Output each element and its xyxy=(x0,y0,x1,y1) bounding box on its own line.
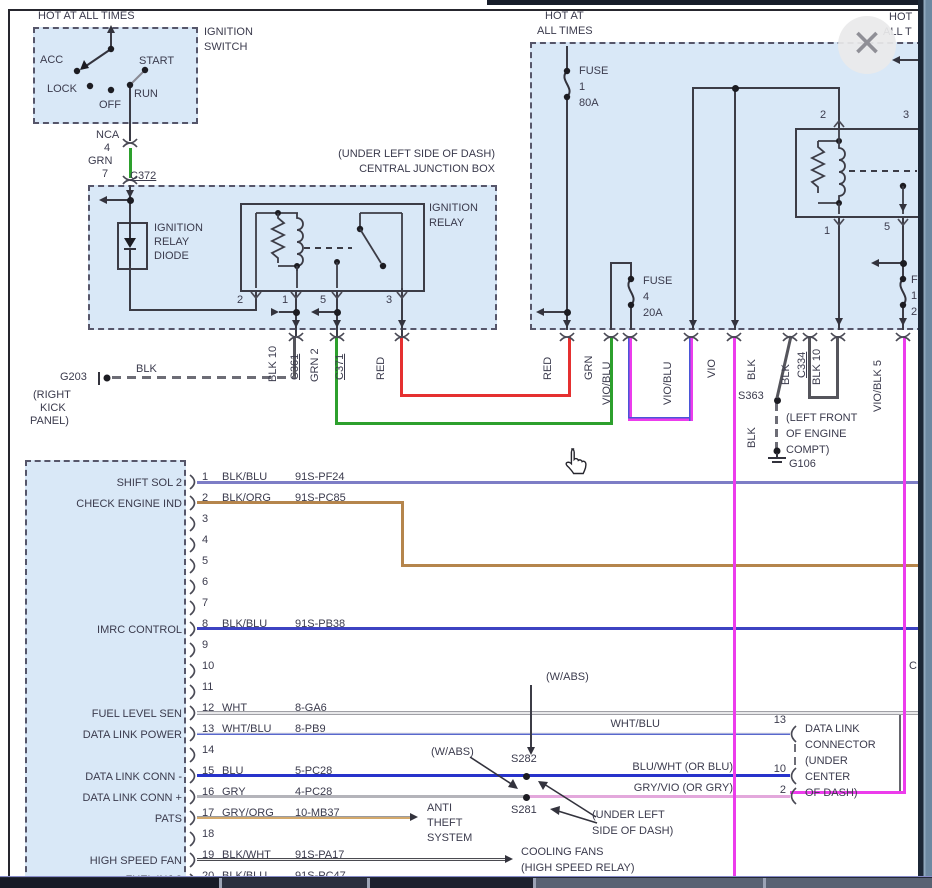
window-top-edge xyxy=(487,0,932,5)
cjb-pin-2: 2 xyxy=(237,294,243,307)
pos-start: START xyxy=(139,55,174,68)
pin-number: 19 xyxy=(202,849,222,862)
splice-location-note: (UNDER LEFT xyxy=(592,809,665,822)
pin-number: 3 xyxy=(202,513,222,526)
fuse1-label: FUSE xyxy=(579,65,608,78)
fuse1-label: 1 xyxy=(579,81,585,94)
splice-location-note: SIDE OF DASH) xyxy=(592,825,673,838)
pcm-row: 2BLK/ORG91S-PC85 xyxy=(202,492,346,505)
ground-g106: G106 xyxy=(789,458,816,471)
pcm-row: 1BLK/BLU91S-PF24 xyxy=(202,471,345,484)
ground-g203: G203 xyxy=(60,371,87,384)
circuit-code: 91S-PF24 xyxy=(295,471,345,483)
dlc-label: (UNDER xyxy=(805,755,848,768)
wire-label-grn: GRN xyxy=(583,342,596,380)
anti-theft-label: SYSTEM xyxy=(427,832,472,845)
g106-location: COMPT) xyxy=(786,444,829,457)
pcm-row: 5 xyxy=(202,555,222,568)
window-right-border xyxy=(918,0,932,888)
pos-run: RUN xyxy=(134,88,158,101)
wire-label-vio: VIO xyxy=(706,346,719,378)
wire-label-blk10: BLK 10 xyxy=(267,334,280,382)
wire-label-red: RED xyxy=(375,344,388,380)
g203-location: PANEL) xyxy=(30,415,69,428)
pcm-circuit-label: DATA LINK CONN + xyxy=(82,792,182,805)
pin-number: 7 xyxy=(202,597,222,610)
ignition-relay-label: RELAY xyxy=(429,217,464,230)
wire-label-wht-blu: WHT/BLU xyxy=(611,718,661,731)
circuit-code: 8-GA6 xyxy=(295,702,327,714)
pin-number: 13 xyxy=(202,723,222,736)
close-button[interactable]: ✕ xyxy=(838,16,896,74)
cjb-location: (UNDER LEFT SIDE OF DASH) xyxy=(338,148,495,161)
relay-pin-1: 1 xyxy=(824,225,830,238)
scrollbar-segment[interactable] xyxy=(222,878,367,888)
pin-number: 10 xyxy=(202,660,222,673)
fuse-icons xyxy=(564,68,906,308)
pcm-row: 19BLK/WHT91S-PA17 xyxy=(202,849,344,862)
pin-number: 14 xyxy=(202,744,222,757)
pos-off: OFF xyxy=(99,99,121,112)
wire-label-vio-blk: VIO/BLK 5 xyxy=(872,336,885,412)
dlc-label: DATA LINK xyxy=(805,723,860,736)
pcm-row: 16GRY4-PC28 xyxy=(202,786,332,799)
pin-number: 11 xyxy=(202,681,222,694)
ignition-switch-contacts xyxy=(74,46,148,93)
ground-g106-icon xyxy=(768,448,786,463)
pcm-row: 11 xyxy=(202,681,222,694)
pcm-circuit-label: CHECK ENGINE IND xyxy=(76,498,182,511)
pcm-circuit-label: SHIFT SOL 2 xyxy=(117,477,182,490)
pin-number: 5 xyxy=(202,555,222,568)
ground-g203-icon xyxy=(99,372,111,385)
fuse-cut-label: F xyxy=(911,274,918,287)
wire-name: GRY xyxy=(222,786,295,799)
dlc-label: OF DASH) xyxy=(805,787,858,800)
relay-pin-5: 5 xyxy=(884,221,890,234)
pcm-circuit-label: HIGH SPEED FAN xyxy=(90,855,182,868)
wire-name: WHT/BLU xyxy=(222,723,295,736)
dlc-label: CONNECTOR xyxy=(805,739,876,752)
ignition-relay-label: IGNITION xyxy=(429,202,478,215)
fuse-cut-label: 1 xyxy=(911,290,917,303)
pcm-row: 3 xyxy=(202,513,222,526)
pcm-pin-arcs xyxy=(190,475,195,888)
wire-label-nca: NCA xyxy=(96,129,119,142)
pin-number: 2 xyxy=(202,492,222,505)
cut-connector-label: C xyxy=(909,660,917,673)
pos-acc: ACC xyxy=(40,54,63,67)
dlc-pin-arcs xyxy=(792,726,797,804)
wabs-note: (W/ABS) xyxy=(546,671,589,684)
cjb-pin-3: 3 xyxy=(386,294,392,307)
wire-label-blu-wht: BLU/WHT (OR BLU) xyxy=(632,761,733,774)
right-relay-internals xyxy=(812,128,907,214)
pin-number: 17 xyxy=(202,807,222,820)
relay-pin-2: 2 xyxy=(820,109,826,122)
wire-label-vio-blu: VIO/BLU xyxy=(601,343,614,405)
diode-icon xyxy=(124,222,136,266)
pcm-row: 9 xyxy=(202,639,222,652)
anti-theft-label: THEFT xyxy=(427,817,462,830)
pin-number: 18 xyxy=(202,828,222,841)
dlc-pin-10: 10 xyxy=(774,763,786,776)
fuse-cut-label: 2 xyxy=(911,306,917,319)
circuit-code: 91S-PC85 xyxy=(295,492,346,504)
wire-label-gry-vio: GRY/VIO (OR GRY) xyxy=(634,782,733,795)
pin-number: 8 xyxy=(202,618,222,631)
relay-pin-3: 3 xyxy=(903,109,909,122)
pcm-circuit-label: FUEL LEVEL SEN xyxy=(92,708,182,721)
ignition-switch-label: IGNITION xyxy=(204,26,253,39)
wire-name: BLK/BLU xyxy=(222,471,295,484)
pcm-row: 4 xyxy=(202,534,222,547)
pcm-circuit-label: DATA LINK POWER xyxy=(83,729,182,742)
wire-label-blk: BLK xyxy=(746,414,759,448)
pin-7: 7 xyxy=(102,168,108,181)
cjb-pin-1: 1 xyxy=(282,294,288,307)
relay-diode-label: IGNITION xyxy=(154,222,203,235)
pcm-row: 17GRY/ORG10-MB37 xyxy=(202,807,340,820)
horizontal-scrollbar[interactable] xyxy=(0,876,932,888)
wabs-note: (W/ABS) xyxy=(431,746,474,759)
pcm-row: 18 xyxy=(202,828,222,841)
scrollbar-segment[interactable] xyxy=(370,878,533,888)
wire-name: BLK/ORG xyxy=(222,492,295,505)
cooling-fans-label: COOLING FANS xyxy=(521,846,604,859)
pcm-row: 12WHT8-GA6 xyxy=(202,702,327,715)
fuse4-label: FUSE xyxy=(643,275,672,288)
dlc-label: CENTER xyxy=(805,771,850,784)
close-icon: ✕ xyxy=(851,22,882,65)
pcm-row: 7 xyxy=(202,597,222,610)
connector-break-symbols xyxy=(123,121,910,341)
circuit-code: 91S-PA17 xyxy=(295,849,344,861)
hot-label: ALL TIMES xyxy=(537,25,593,38)
pcm-row: 13WHT/BLU8-PB9 xyxy=(202,723,326,736)
connector-c372: C372 xyxy=(130,170,156,183)
splice-s282: S282 xyxy=(511,753,537,766)
pcm-circuit-label: PATS xyxy=(155,813,182,826)
wire-name: GRY/ORG xyxy=(222,807,295,820)
pos-lock: LOCK xyxy=(47,83,77,96)
dlc-pin-2: 2 xyxy=(780,784,786,797)
g106-location: OF ENGINE xyxy=(786,428,847,441)
pcm-row: 15BLU5-PC28 xyxy=(202,765,332,778)
pin-number: 6 xyxy=(202,576,222,589)
circuit-code: 5-PC28 xyxy=(295,765,332,777)
splice-s363: S363 xyxy=(738,390,764,403)
splice-s281: S281 xyxy=(511,804,537,817)
circuit-code: 91S-PB38 xyxy=(295,618,345,630)
ignition-switch-label: SWITCH xyxy=(204,41,247,54)
cooling-fans-label: (HIGH SPEED RELAY) xyxy=(521,862,635,875)
wire-name: BLK/BLU xyxy=(222,618,295,631)
wire-label-blk: BLK xyxy=(780,349,793,385)
wire-label-blk: BLK xyxy=(746,344,759,380)
wire-label-blk: BLK xyxy=(136,363,157,376)
relay-diode-label: DIODE xyxy=(154,250,189,263)
g106-location: (LEFT FRONT xyxy=(786,412,857,425)
pin-number: 16 xyxy=(202,786,222,799)
pcm-circuit-label: IMRC CONTROL xyxy=(97,624,182,637)
fuse4-label: 4 xyxy=(643,291,649,304)
pcm-row: 10 xyxy=(202,660,222,673)
connector-c361: C361 xyxy=(289,336,302,380)
circuit-code: 8-PB9 xyxy=(295,723,326,735)
circuit-code: 10-MB37 xyxy=(295,807,340,819)
pin-number: 1 xyxy=(202,471,222,484)
g203-location: KICK xyxy=(40,402,66,415)
wire-name: WHT xyxy=(222,702,295,715)
wire-label-grn2: GRN 2 xyxy=(309,334,322,382)
pcm-row: 6 xyxy=(202,576,222,589)
hot-at-all-times-label: HOT AT ALL TIMES xyxy=(38,10,135,23)
scrollbar-thumb[interactable] xyxy=(536,878,763,888)
wire-label-vio-blu: VIO/BLU xyxy=(662,343,675,405)
circuit-code: 4-PC28 xyxy=(295,786,332,798)
relay-diode-label: RELAY xyxy=(154,236,189,249)
wire-name: BLU xyxy=(222,765,295,778)
pin-number: 15 xyxy=(202,765,222,778)
cjb-pin-5: 5 xyxy=(320,294,326,307)
scrollbar-thumb[interactable] xyxy=(766,878,932,888)
fuse1-label: 80A xyxy=(579,97,599,110)
scrollbar-segment[interactable] xyxy=(0,878,219,888)
pin-number: 9 xyxy=(202,639,222,652)
anti-theft-label: ANTI xyxy=(427,802,452,815)
pcm-circuit-label: DATA LINK CONN - xyxy=(85,771,182,784)
pin-4: 4 xyxy=(104,142,110,155)
pcm-row: 8BLK/BLU91S-PB38 xyxy=(202,618,345,631)
hot-label: HOT AT xyxy=(545,10,584,23)
wire-name: BLK/WHT xyxy=(222,849,295,862)
cjb-title: CENTRAL JUNCTION BOX xyxy=(359,163,495,176)
connector-c371: C371 xyxy=(334,336,347,380)
wiring-diagram-viewer: HOT AT ALL TIMES IGNITION SWITCH ACC LOC… xyxy=(0,0,932,888)
ignition-relay-internals xyxy=(256,210,402,288)
pcm-row: 14 xyxy=(202,744,222,757)
wire-label-grn: GRN xyxy=(88,155,112,168)
fuse4-label: 20A xyxy=(643,307,663,320)
wire-label-red: RED xyxy=(542,344,555,380)
g203-location: (RIGHT xyxy=(33,389,71,402)
dlc-pin-13: 13 xyxy=(774,714,786,727)
connector-c334: C334 xyxy=(796,336,809,378)
pin-number: 4 xyxy=(202,534,222,547)
wire-label-blk10: BLK 10 xyxy=(811,337,824,385)
pin-number: 12 xyxy=(202,702,222,715)
hot-label-cut: HOT xyxy=(889,11,912,24)
